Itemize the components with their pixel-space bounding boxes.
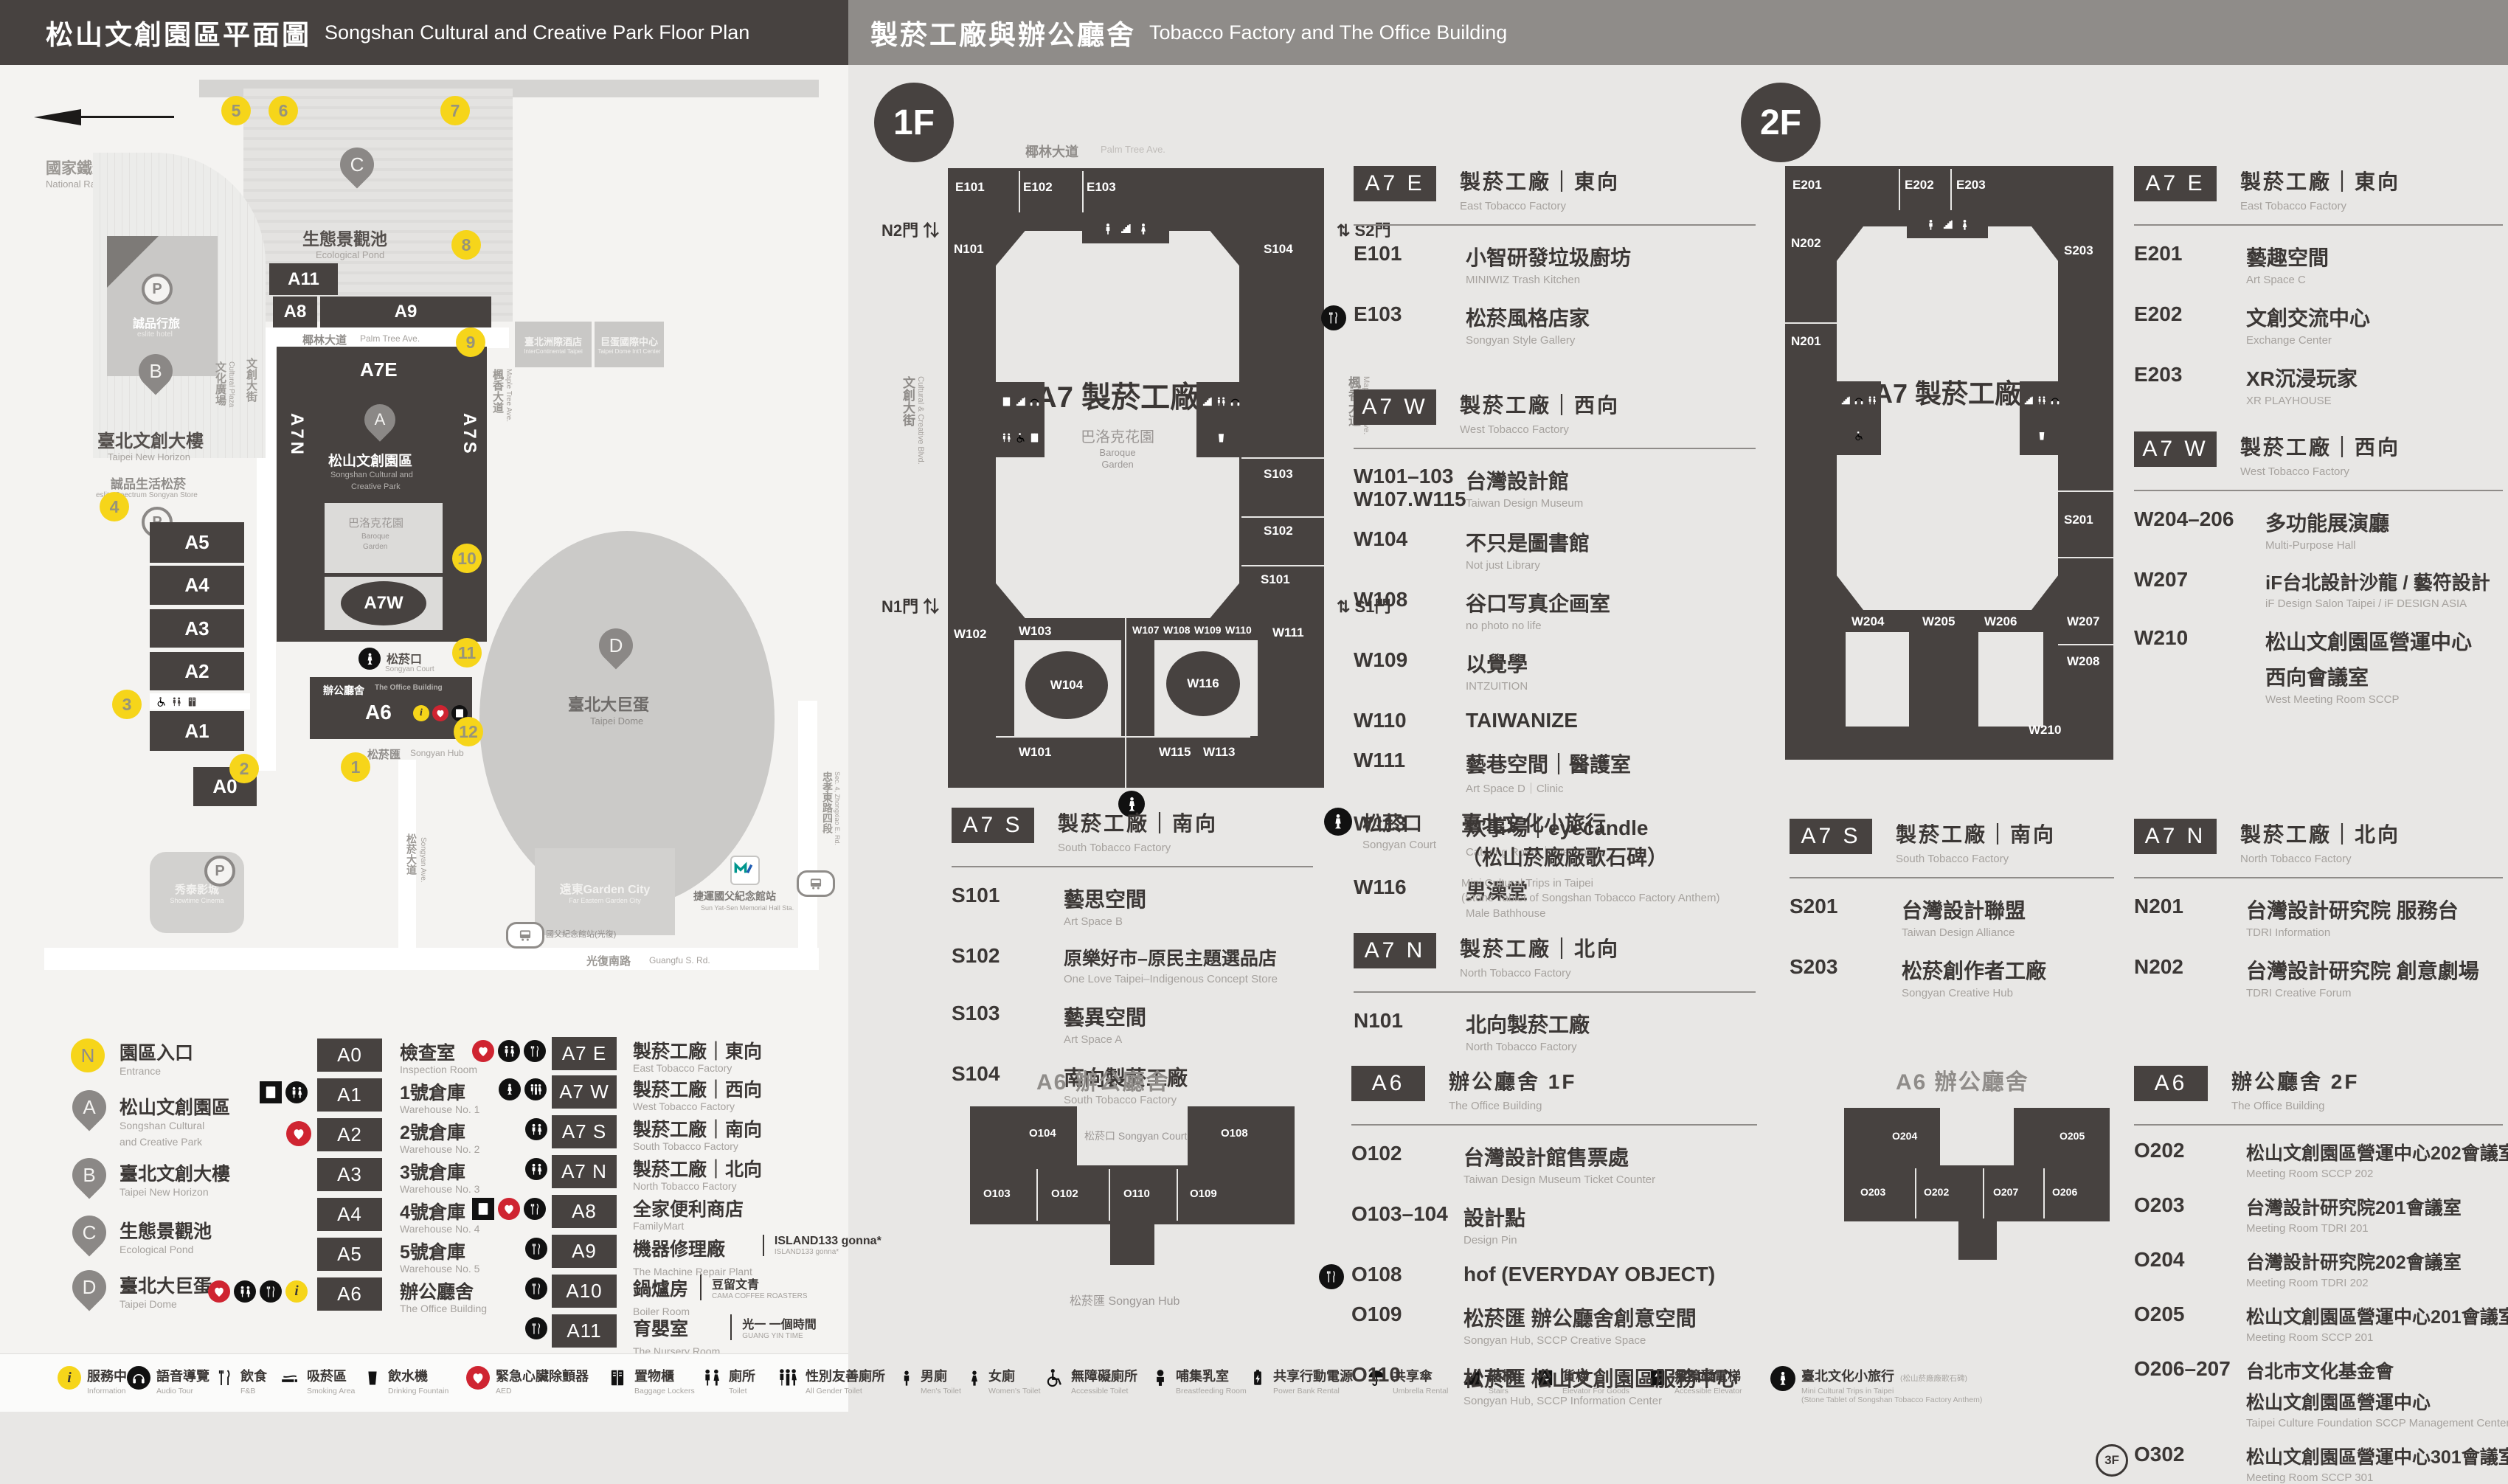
chip-a7e-2f: A7 E xyxy=(2134,166,2217,201)
legend-a11-fnb-icon xyxy=(525,1317,547,1339)
legend-a9-fnb-icon xyxy=(525,1238,547,1260)
legend-chip-a11: A11 xyxy=(552,1314,617,1348)
smoking-icon xyxy=(279,1366,301,1390)
f2-room-n202: N202 xyxy=(1791,236,1821,251)
entrance-4: 4 xyxy=(100,492,129,521)
f2-room-e202: E202 xyxy=(1905,178,1934,193)
legend-entrance-zh: 園區入口 xyxy=(119,1039,193,1065)
legend-a0-zh: 檢查室 xyxy=(400,1039,455,1065)
info-icon: i xyxy=(58,1366,81,1390)
legend-entrance-en: Entrance xyxy=(119,1065,161,1077)
baby-icon xyxy=(1151,1366,1170,1390)
f2-room-s201: S201 xyxy=(2064,513,2093,527)
womens-icon xyxy=(966,1366,983,1390)
f1-room-w116: W116 xyxy=(1166,651,1240,716)
headphones-icon xyxy=(127,1366,150,1390)
f1-room-w107: W107 xyxy=(1132,624,1160,636)
map-a7w-label: A7W xyxy=(341,581,426,625)
a6-1f-room-o104: O104 xyxy=(1029,1127,1056,1140)
f1-garden-en1: Baroque xyxy=(1018,447,1217,458)
f2-amenities-right xyxy=(2020,381,2064,455)
eslite-store-zh: 誠品生活松菸 xyxy=(111,474,186,492)
a6-1f-plan: A6 辦公廳舍 松菸口 Songyan Court O104 O108 O103… xyxy=(926,1055,1339,1342)
legend-a1-zh: 1號倉庫 xyxy=(400,1078,465,1105)
f2-room-w206: W206 xyxy=(1984,614,2017,629)
legend-a2-en: Warehouse No. 2 xyxy=(400,1143,479,1155)
f1-room-w104: W104 xyxy=(1025,651,1108,719)
f1-street-top-en: Palm Tree Ave. xyxy=(1101,144,1165,155)
a6-2f-plan: A6 辦公廳舍 O204 O205 O203 O202 O207 O206 xyxy=(1822,1055,2139,1306)
chip-a7s-1f: A7 S xyxy=(952,808,1034,843)
f1-room-w102: W102 xyxy=(954,627,986,642)
legend-a0-en: Inspection Room xyxy=(400,1064,477,1075)
map-park-en2: Creative Park xyxy=(351,482,401,491)
header-left: 松山文創園區平面圖Songshan Cultural and Creative … xyxy=(0,0,848,65)
zhongxiao-en: Sec. 4, Zhongxiao E. Rd. xyxy=(834,772,841,845)
eslite-hotel-en: eslite hotel xyxy=(137,330,173,339)
legend-pin-D-zh: 臺北大巨蛋 xyxy=(119,1272,212,1298)
a6-1f-protrusion xyxy=(1110,1224,1154,1265)
legend-chip-a7e: A7 E xyxy=(552,1037,617,1070)
a6-1f-plan-title: A6 辦公廳舍 xyxy=(1036,1064,1170,1096)
legend-pin-A-zh: 松山文創園區 xyxy=(119,1093,230,1120)
legend-chip-a6: A6 xyxy=(317,1277,382,1311)
plaza-street-en: Cultural Plaza xyxy=(227,361,235,407)
header-right: 製菸工廠與辦公廳舍Tobacco Factory and The Office … xyxy=(848,0,2508,65)
footer-fnb: 飲食F&B xyxy=(215,1366,267,1395)
f2-inset-w204 xyxy=(1846,632,1909,727)
map-block-a4: A4 xyxy=(150,566,244,605)
map-court-en: Songyan Court xyxy=(385,665,434,673)
legend-chip-a1: A1 xyxy=(317,1078,382,1112)
garden-city-block: 遠東Garden CityFar Eastern Garden City xyxy=(535,848,675,935)
f2-room-w208: W208 xyxy=(2067,654,2099,669)
f2-amenities-left xyxy=(1837,381,1881,455)
map-a6-label: A6 xyxy=(365,701,392,724)
parking-icon-1: P xyxy=(142,274,173,305)
f1-room-e103: E103 xyxy=(1087,180,1116,195)
legend-a7e-en: East Tobacco Factory xyxy=(633,1062,732,1074)
north-arrow xyxy=(34,109,174,125)
legend-chip-a7n: A7 N xyxy=(552,1155,617,1188)
legend-pin-C: C xyxy=(65,1208,113,1256)
legend-a8-icons xyxy=(472,1198,546,1220)
legend-a6-en: The Office Building xyxy=(400,1303,487,1314)
f2-top-toilets xyxy=(1907,210,1988,238)
section-title-zh: 製菸工廠與辦公廳舍 xyxy=(870,13,1136,52)
intercontinental-block: 臺北洲際酒店InterContinental Taipei xyxy=(515,322,592,367)
section-a7w-2f: A7 W 製菸工廠｜西向West Tobacco Factory W204–20… xyxy=(2134,431,2503,706)
section-a7s-2f: A7 S 製菸工廠｜南向South Tobacco Factory S201台灣… xyxy=(1790,819,2114,999)
bus-stop-icon-2 xyxy=(797,870,835,897)
f1-room-w111: W111 xyxy=(1272,625,1304,640)
legend-chip-a7w: A7 W xyxy=(552,1075,617,1109)
f2-room-w204: W204 xyxy=(1851,614,1884,629)
f2-inset-w206 xyxy=(1978,632,2043,727)
map-block-a2: A2 xyxy=(150,652,244,690)
a6-1f-court-label: 松菸口 Songyan Court xyxy=(1084,1128,1187,1143)
legend-pin-A-en2: and Creative Park xyxy=(119,1136,202,1148)
songyan-ave-en: Songyan Ave. xyxy=(419,837,427,883)
map-office-zh: 辦公廳舍 xyxy=(323,683,364,698)
info-icon-map: i xyxy=(413,705,429,721)
zhongxiao-road xyxy=(798,701,817,955)
map-park-en1: Songshan Cultural and xyxy=(330,471,413,479)
locker-icon xyxy=(606,1366,628,1390)
f1-room-e102: E102 xyxy=(1023,180,1053,195)
legend-a10-fnb-icon xyxy=(525,1277,547,1300)
chip-a7n-2f: A7 N xyxy=(2134,819,2217,854)
a6-2f-protrusion xyxy=(1958,1221,1997,1260)
cup-icon xyxy=(363,1366,382,1390)
legend-a6-icons: i xyxy=(208,1280,308,1303)
legend-a3-en: Warehouse No. 3 xyxy=(400,1183,479,1195)
footer-fountain: 飲水機Drinking Fountain xyxy=(363,1366,448,1395)
f1-center-label: A7 製菸工廠 xyxy=(1018,373,1217,416)
entrance-1: 1 xyxy=(341,752,370,782)
footer-toilet: 廁所Toilet xyxy=(701,1366,755,1395)
f1-room-w115: W115 xyxy=(1159,745,1191,760)
pond-label-en: Ecological Pond xyxy=(316,249,384,260)
map-a1-icon-strip xyxy=(150,693,250,710)
legend-chip-a4: A4 xyxy=(317,1198,382,1231)
map-hub-en: Songyan Hub xyxy=(410,748,464,758)
badge-3f: 3F xyxy=(2096,1444,2128,1477)
fnb-icon-e103 xyxy=(1321,305,1346,330)
entrance-3: 3 xyxy=(112,690,142,719)
legend-a2-aed-icon xyxy=(286,1121,311,1146)
floor2-badge: 2F xyxy=(1741,83,1821,162)
pond-label-zh: 生態景觀池 xyxy=(302,225,387,250)
pin-A: A xyxy=(358,398,401,441)
entrance-11: 11 xyxy=(452,638,482,668)
f2-room-w205: W205 xyxy=(1922,614,1955,629)
footer-audio-tour: 語音導覽Audio Tour xyxy=(127,1366,209,1395)
section-a7n-1f: A7 N 製菸工廠｜北向North Tobacco Factory N101北向… xyxy=(1354,933,1756,1053)
footer-aed: 緊急心臟除顫器AED xyxy=(466,1366,589,1395)
map-baroque-zh: 巴洛克花園 xyxy=(348,515,403,530)
footer-smoking: 吸菸區Smoking Area xyxy=(279,1366,355,1395)
entrance-6: 6 xyxy=(269,96,298,125)
f1-top-toilets xyxy=(1082,214,1169,243)
mrt-zh: 捷運國父紀念館站 xyxy=(693,889,776,904)
legend-chip-a3: A3 xyxy=(317,1158,382,1191)
legend-pin-B: B xyxy=(65,1151,113,1199)
f1-room-w109: W109 xyxy=(1194,624,1222,636)
footer-power-bank: 共享行動電源Power Bank Rental xyxy=(1248,1366,1353,1395)
f2-room-e203: E203 xyxy=(1956,178,1986,193)
legend-a7w-zh: 製菸工廠｜西向 xyxy=(633,1075,762,1102)
a6-2f-room-o203: O203 xyxy=(1860,1186,1885,1198)
f1-room-s102: S102 xyxy=(1264,524,1293,538)
blvd-street-zh: 文創大街 xyxy=(243,358,259,402)
legend-chip-a2: A2 xyxy=(317,1118,382,1151)
section-a6-1f: A6 辦公廳舍 1FThe Office Building O102台灣設計館售… xyxy=(1351,1066,1757,1407)
floor1-plan: E101 E102 E103 N101 S104 S103 S102 S101 … xyxy=(948,168,1324,788)
aed-icon xyxy=(466,1366,490,1390)
legend-a7e-zh: 製菸工廠｜東向 xyxy=(633,1037,762,1064)
legend-pin-B-en: Taipei New Horizon xyxy=(119,1186,209,1198)
legend-a7e-icons xyxy=(472,1040,546,1062)
legend-pin-C-en: Ecological Pond xyxy=(119,1244,193,1255)
f2-room-w210: W210 xyxy=(2029,723,2061,738)
a6-2f-room-o204: O204 xyxy=(1892,1130,1917,1142)
a6-1f-room-o103: O103 xyxy=(983,1187,1011,1200)
dome-center-block: 巨蛋國際中心Taipei Dome Int'l Center xyxy=(595,322,664,367)
entrance-9: 9 xyxy=(456,327,485,357)
legend-chip-a7s: A7 S xyxy=(552,1115,617,1148)
footer-mens: 男廁Men's Toilet xyxy=(898,1366,961,1395)
pin-B: B xyxy=(131,347,179,395)
chip-a7s-2f: A7 S xyxy=(1790,819,1872,854)
legend-pin-A: A xyxy=(65,1083,113,1131)
a6-1f-room-o110: O110 xyxy=(1123,1187,1150,1200)
plaza-street-zh: 文化廣場 xyxy=(212,361,228,406)
chip-a7w-1f: A7 W xyxy=(1354,389,1436,425)
f1-room-s104: S104 xyxy=(1264,242,1293,257)
f1-room-w101: W101 xyxy=(1019,745,1051,760)
legend-a5-zh: 5號倉庫 xyxy=(400,1238,465,1264)
legend-a7s-en: South Tobacco Factory xyxy=(633,1140,738,1152)
a6-1f-room-o108: O108 xyxy=(1221,1127,1248,1140)
songyan-court-note: 松菸口Songyan Court 臺北文化小旅行（松山菸廠廠歌石碑） Mini … xyxy=(1324,808,1763,904)
legend-pin-B-zh: 臺北文創大樓 xyxy=(119,1159,230,1186)
legend-pin-D: D xyxy=(65,1263,113,1311)
f1-amenities-right xyxy=(1196,382,1245,457)
map-a7n-label: A7N xyxy=(286,413,307,457)
entrance-12: 12 xyxy=(454,717,483,746)
floor1-badge: 1F xyxy=(874,83,954,162)
legend-a9-label: 機器修理廠The Machine Repair Plant ISLAND133 … xyxy=(633,1235,881,1277)
horizon-zh: 臺北文創大樓 xyxy=(97,426,204,452)
map-a7s-label: A7S xyxy=(459,413,479,457)
f1-room-w103: W103 xyxy=(1019,624,1051,639)
parking-icon-3: P xyxy=(204,856,235,887)
footer-womens: 女廁Women's Toilet xyxy=(966,1366,1040,1395)
legend-chip-a9: A9 xyxy=(552,1235,617,1268)
entrance-badge: N xyxy=(71,1039,105,1072)
legend-a8-zh: 全家便利商店 xyxy=(633,1195,744,1221)
f1-gate-n1: N1門 ⇅ xyxy=(881,594,939,617)
f1-room-s101: S101 xyxy=(1261,572,1290,587)
bus-stop-icon xyxy=(506,922,544,949)
entrance-7: 7 xyxy=(440,96,470,125)
f1-garden-zh: 巴洛克花園 xyxy=(1018,425,1217,446)
a6-2f-room-o205: O205 xyxy=(2060,1130,2085,1142)
a6-1f-wing-left xyxy=(970,1106,1077,1165)
footer-accessible-toilet: 無障礙廁所Accessible Toilet xyxy=(1043,1366,1137,1395)
f1-street-left-en: Cultural & Creative Blvd. xyxy=(916,376,925,465)
palm-ave-zh: 椰林大道 xyxy=(302,332,347,347)
legend-a6-zh: 辦公廳舍 xyxy=(400,1277,474,1304)
legend-a11-label: 育嬰室The Nursery Room 光一 一個時間GUANG YIN TIM… xyxy=(633,1314,817,1357)
map-baroque-en1: Baroque xyxy=(361,533,389,541)
toilet-icon xyxy=(701,1366,723,1390)
songyan-ave-zh: 松菸大道 xyxy=(404,833,419,875)
legend-a10-label: 鍋爐房Boiler Room 豆留文青CAMA COFFEE ROASTERS xyxy=(633,1275,808,1317)
legend-a7n-zh: 製菸工廠｜北向 xyxy=(633,1155,762,1182)
legend-a7s-zh: 製菸工廠｜南向 xyxy=(633,1115,762,1142)
map-court-zh: 松菸口 xyxy=(387,649,422,667)
f1-amenities-left xyxy=(996,382,1045,457)
footer-cultural-trip: 臺北文化小旅行(松山菸廠廠歌石碑) Mini Cultural Trips in… xyxy=(1770,1366,1982,1404)
f1-street-top-zh: 椰林大道 xyxy=(1025,142,1078,161)
map-block-a8: A8 xyxy=(273,297,317,327)
horizon-en: Taipei New Horizon xyxy=(108,451,190,462)
a6-2f-room-o206: O206 xyxy=(2052,1186,2077,1198)
legend-a8-en: FamilyMart xyxy=(633,1220,684,1232)
map-office-en: The Office Building xyxy=(375,684,443,692)
a6-2f-room-o202: O202 xyxy=(1924,1186,1949,1198)
legend-a1-en: Warehouse No. 1 xyxy=(400,1103,479,1115)
a6-1f-room-o109: O109 xyxy=(1190,1187,1217,1200)
chip-a7e-1f: A7 E xyxy=(1354,166,1436,201)
map-block-a5: A5 xyxy=(150,522,244,563)
a6-1f-hub-label: 松菸匯 Songyan Hub xyxy=(1070,1291,1179,1308)
map-hub-zh: 松菸匯 xyxy=(367,746,401,762)
statue-icon xyxy=(1770,1366,1795,1391)
f1-gate-n2: N2門 ⇅ xyxy=(881,218,939,241)
legend-chip-a0: A0 xyxy=(317,1039,382,1072)
section-a6-2f: A6 辦公廳舍 2FThe Office Building O202松山文創園區… xyxy=(2134,1066,2503,1484)
guangfu-zh: 光復南路 xyxy=(586,953,631,968)
legend-a7w-en: West Tobacco Factory xyxy=(633,1100,735,1112)
map-a7e-label: A7E xyxy=(360,358,398,381)
map-block-a1: A1 xyxy=(150,711,244,751)
legend-pin-C-zh: 生態景觀池 xyxy=(119,1217,212,1244)
court-statue-icon xyxy=(1324,808,1352,836)
palm-ave-en: Palm Tree Ave. xyxy=(360,333,420,344)
eslite-hotel-zh: 誠品行旅 xyxy=(133,313,180,331)
f1-room-w108: W108 xyxy=(1163,624,1191,636)
entrance-2: 2 xyxy=(229,754,259,783)
map-block-a9: A9 xyxy=(320,297,491,327)
legend-a4-zh: 4號倉庫 xyxy=(400,1198,465,1224)
entrance-10: 10 xyxy=(452,544,482,573)
legend-chip-a5: A5 xyxy=(317,1238,382,1271)
entrance-8: 8 xyxy=(451,230,481,260)
fnb-icon xyxy=(215,1366,235,1390)
zhongxiao-zh: 忠孝東路四段 xyxy=(820,772,835,833)
f2-room-s203: S203 xyxy=(2064,243,2093,258)
chip-a7w-2f: A7 W xyxy=(2134,431,2217,467)
f1-room-s103: S103 xyxy=(1264,467,1293,482)
footer-lockers: 置物櫃Baggage Lockers xyxy=(606,1366,695,1395)
section-title-en: Tobacco Factory and The Office Building xyxy=(1149,21,1507,44)
wheelchair-icon xyxy=(1043,1366,1065,1390)
legend-a1-icons xyxy=(260,1081,308,1103)
f2-room-n201: N201 xyxy=(1791,334,1821,349)
fnb-icon-o108 xyxy=(1319,1264,1344,1289)
legend-a5-en: Warehouse No. 5 xyxy=(400,1263,479,1275)
a6-2f-room-o207: O207 xyxy=(1993,1186,2018,1198)
floor2-plan: E201 E202 E203 N202 N201 S203 S201 A7 製菸… xyxy=(1785,166,2113,760)
maple-street-en: Maple Tree Ave. xyxy=(505,369,513,422)
f1-street-left-zh: 文創大街 xyxy=(898,376,917,426)
f2-room-e201: E201 xyxy=(1792,178,1822,193)
chip-a6-2f: A6 xyxy=(2134,1066,2208,1101)
maple-street-zh: 楓香大道 xyxy=(490,369,505,413)
legend-a7n-toilet-icon xyxy=(525,1158,547,1180)
map-block-a11: A11 xyxy=(269,263,338,295)
page-title-en: Songshan Cultural and Creative Park Floo… xyxy=(325,21,749,44)
aed-icon-map xyxy=(432,705,448,721)
f1-room-e101: E101 xyxy=(955,180,985,195)
chip-a7n-1f: A7 N xyxy=(1354,933,1436,968)
entrance-5: 5 xyxy=(221,96,251,125)
legend-pin-D-en: Taipei Dome xyxy=(119,1298,177,1310)
a6-1f-room-o102: O102 xyxy=(1051,1187,1078,1200)
a6-2f-plan-title: A6 辦公廳舍 xyxy=(1896,1064,2029,1096)
legend-chip-a10: A10 xyxy=(552,1275,617,1308)
legend-a3-zh: 3號倉庫 xyxy=(400,1158,465,1185)
pin-C: C xyxy=(333,140,381,188)
dome-zh: 臺北大巨蛋 xyxy=(568,692,649,715)
f1-room-n101: N101 xyxy=(954,242,984,257)
mrt-en: Sun Yat-Sen Memorial Hall Sta. xyxy=(701,904,794,912)
legend-a7s-toilet-icon xyxy=(525,1118,547,1140)
legend-pin-A-en1: Songshan Cultural xyxy=(119,1120,204,1131)
legend-a7w-icons xyxy=(499,1078,547,1100)
legend-a4-en: Warehouse No. 4 xyxy=(400,1223,479,1235)
section-a7n-2f: A7 N 製菸工廠｜北向North Tobacco Factory N201台灣… xyxy=(2134,819,2503,999)
section-a7e-1f: A7 E 製菸工廠｜東向East Tobacco Factory E101小智研… xyxy=(1354,166,1756,347)
map-block-a3: A3 xyxy=(150,609,244,648)
statue-icon-map xyxy=(358,648,381,670)
metro-logo xyxy=(730,856,760,885)
f1-room-w110: W110 xyxy=(1225,624,1252,636)
map-park-zh: 松山文創園區 xyxy=(328,450,412,470)
bus-stop-label: 國父紀念館站(光復) xyxy=(546,928,616,940)
legend-chip-a8: A8 xyxy=(552,1195,617,1228)
pin-D: D xyxy=(592,621,640,669)
battery-icon xyxy=(1248,1366,1267,1390)
guangfu-en: Guangfu S. Rd. xyxy=(649,955,710,965)
dome-en: Taipei Dome xyxy=(590,715,643,727)
footer-breastfeeding: 哺集乳室Breastfeeding Room xyxy=(1151,1366,1247,1395)
f1-room-w113: W113 xyxy=(1203,745,1235,760)
page-title-zh: 松山文創園區平面圖 xyxy=(46,13,311,52)
f1-garden-en2: Garden xyxy=(1018,459,1217,470)
f2-room-w207: W207 xyxy=(2067,614,2099,629)
mens-icon xyxy=(898,1366,915,1390)
section-a7e-2f: A7 E 製菸工廠｜東向East Tobacco Factory E201藝趣空… xyxy=(2134,166,2503,407)
legend-a7n-en: North Tobacco Factory xyxy=(633,1180,737,1192)
all-gender-icon xyxy=(776,1366,800,1390)
legend-a2-zh: 2號倉庫 xyxy=(400,1118,465,1145)
footer-all-gender: 性別友善廁所All Gender Toilet xyxy=(776,1366,885,1395)
chip-a6-1f: A6 xyxy=(1351,1066,1425,1101)
map-baroque-en2: Garden xyxy=(363,543,387,551)
